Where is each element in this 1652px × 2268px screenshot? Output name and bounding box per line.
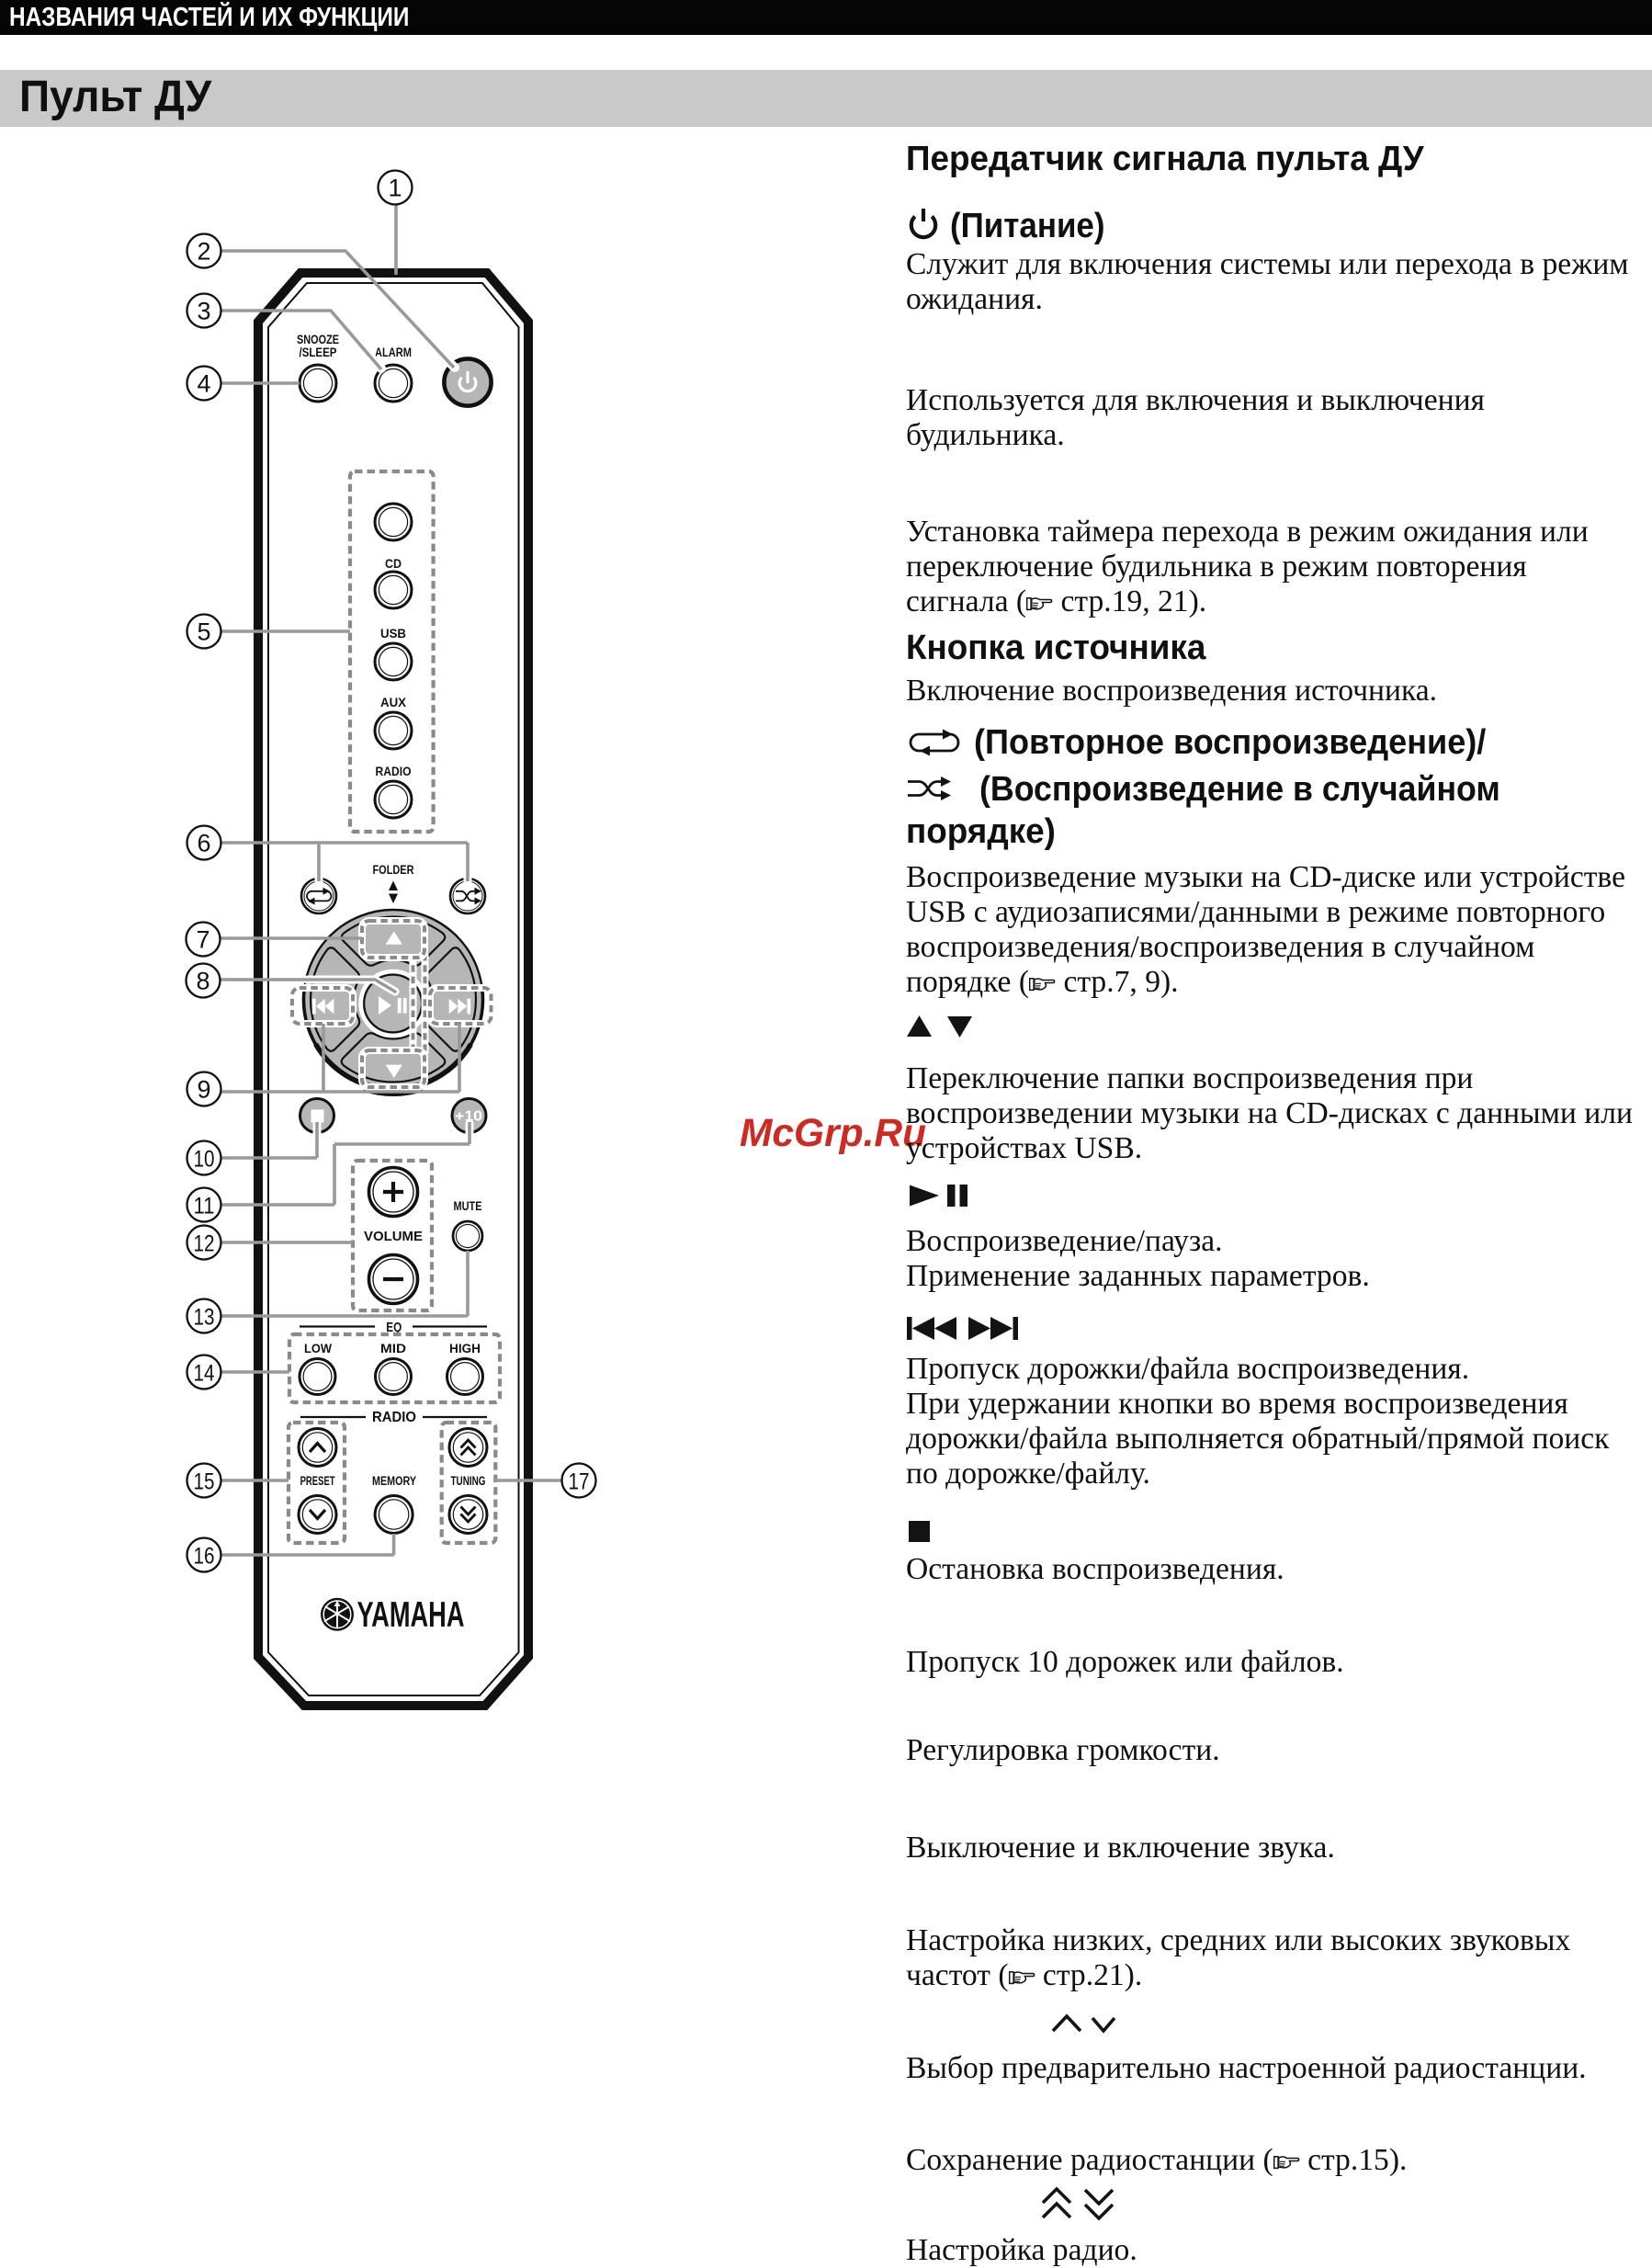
svg-text:SNOOZE: SNOOZE [297,333,339,346]
svg-text:1: 1 [388,175,402,202]
svg-text:13: 13 [194,1305,215,1331]
svg-text:FOLDER: FOLDER [373,863,414,877]
svg-text:HIGH: HIGH [449,1342,481,1355]
svg-text:LOW: LOW [304,1342,332,1355]
svg-text:YAMAHA: YAMAHA [357,1595,465,1635]
svg-text:RADIO: RADIO [372,1410,416,1425]
svg-text:ALARM: ALARM [375,346,412,359]
svg-text:16: 16 [194,1544,215,1570]
svg-text:11: 11 [194,1194,215,1219]
svg-text:15: 15 [194,1469,215,1495]
svg-text:2: 2 [197,238,210,266]
svg-text:MEMORY: MEMORY [372,1474,416,1488]
svg-text:4: 4 [197,370,210,398]
svg-text:TUNING: TUNING [451,1474,486,1488]
svg-text:14: 14 [194,1361,215,1387]
svg-text:5: 5 [197,618,210,646]
svg-text:9: 9 [197,1076,210,1104]
svg-text:CD: CD [385,556,402,571]
svg-text:3: 3 [197,298,210,325]
svg-text:10: 10 [194,1147,215,1173]
svg-text:/SLEEP: /SLEEP [300,346,337,359]
svg-text:PRESET: PRESET [300,1474,336,1488]
svg-text:MID: MID [380,1342,406,1355]
svg-text:RADIO: RADIO [376,764,412,778]
svg-text:17: 17 [569,1469,590,1495]
svg-text:VOLUME: VOLUME [364,1229,423,1244]
svg-text:MUTE: MUTE [454,1199,482,1213]
svg-text:7: 7 [196,926,209,954]
svg-text:AUX: AUX [380,695,407,709]
svg-text:8: 8 [196,968,209,995]
svg-text:6: 6 [197,830,210,857]
svg-text:12: 12 [194,1231,215,1257]
svg-text:USB: USB [380,626,406,641]
